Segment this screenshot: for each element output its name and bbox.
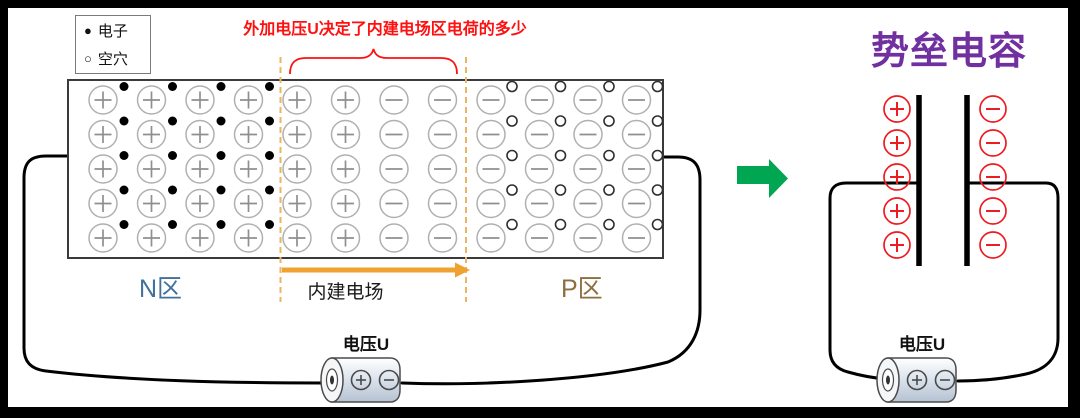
electron-dot <box>120 82 129 91</box>
hole-dot <box>653 220 663 230</box>
electron-dot-icon: ● <box>84 24 92 37</box>
capacitor-battery-terminal-tip <box>886 376 890 385</box>
electron-dot <box>120 220 129 229</box>
electron-dot <box>265 117 274 126</box>
hole-dot <box>653 82 663 92</box>
legend-hole-label: 空穴 <box>98 48 128 69</box>
built-in-field-arrowhead <box>455 263 470 278</box>
hole-dot <box>556 151 566 161</box>
hole-dot <box>556 220 566 230</box>
frame-border <box>1068 0 1080 418</box>
source-battery-terminal-tip <box>330 376 334 385</box>
electron-dot <box>265 82 274 91</box>
p-region-label: P区 <box>561 269 603 305</box>
electron-dot <box>168 117 177 126</box>
hole-dot <box>604 220 614 230</box>
electron-dot <box>217 186 226 195</box>
electron-dot <box>120 186 129 195</box>
electron-dot <box>217 220 226 229</box>
hole-dot <box>507 82 517 92</box>
electron-dot <box>217 151 226 160</box>
hole-dot <box>604 116 614 126</box>
electron-dot <box>265 220 274 229</box>
frame-border <box>0 0 8 418</box>
hole-dot <box>556 185 566 195</box>
hole-dot <box>507 185 517 195</box>
capacitor-battery-label: 电压U <box>892 330 952 355</box>
electron-dot <box>265 151 274 160</box>
electron-dot <box>120 117 129 126</box>
hole-dot-icon: ○ <box>84 52 92 65</box>
electron-dot <box>217 117 226 126</box>
n-region-label: N区 <box>139 269 182 305</box>
electron-dot <box>168 186 177 195</box>
hole-dot <box>653 116 663 126</box>
hole-dot <box>556 82 566 92</box>
hole-dot <box>653 151 663 161</box>
legend-electron-label: 电子 <box>98 20 128 41</box>
circuit-wire <box>958 183 1058 381</box>
frame-border <box>0 0 1080 8</box>
electron-dot <box>217 82 226 91</box>
electron-dot <box>168 220 177 229</box>
electron-dot <box>168 151 177 160</box>
applied-voltage-caption: 外加电压U决定了内建电场区电荷的多少 <box>225 15 545 39</box>
source-battery-label: 电压U <box>336 330 396 355</box>
legend-electron: ● 电子 <box>84 20 150 41</box>
built-in-field-label: 内建电场 <box>293 277 398 304</box>
hole-dot <box>604 151 614 161</box>
hole-dot <box>604 185 614 195</box>
hole-dot <box>507 116 517 126</box>
hole-dot <box>507 220 517 230</box>
slide-canvas: ● 电子 ○ 空穴 外加电压U决定了内建电场区电荷的多少 N区 内建电场 P区 … <box>0 0 1080 418</box>
electron-dot <box>265 186 274 195</box>
caption-brace <box>290 49 457 74</box>
electron-dot <box>120 151 129 160</box>
legend-hole: ○ 空穴 <box>84 48 150 69</box>
hole-dot <box>507 151 517 161</box>
transform-arrow-icon <box>737 159 788 198</box>
legend-box: ● 电子 ○ 空穴 <box>75 15 151 74</box>
electron-dot <box>168 82 177 91</box>
barrier-capacitance-title: 势垒电容 <box>859 20 1039 75</box>
hole-dot <box>653 185 663 195</box>
hole-dot <box>556 116 566 126</box>
hole-dot <box>604 82 614 92</box>
frame-border <box>0 407 1080 418</box>
